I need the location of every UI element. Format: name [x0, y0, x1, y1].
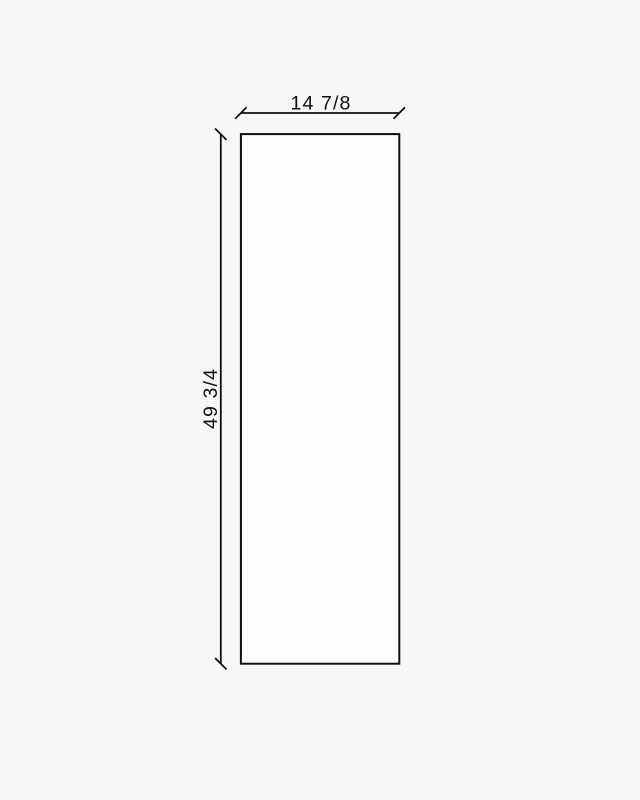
svg-text:49 3/4: 49 3/4: [200, 368, 222, 429]
svg-text:14 7/8: 14 7/8: [290, 92, 351, 114]
